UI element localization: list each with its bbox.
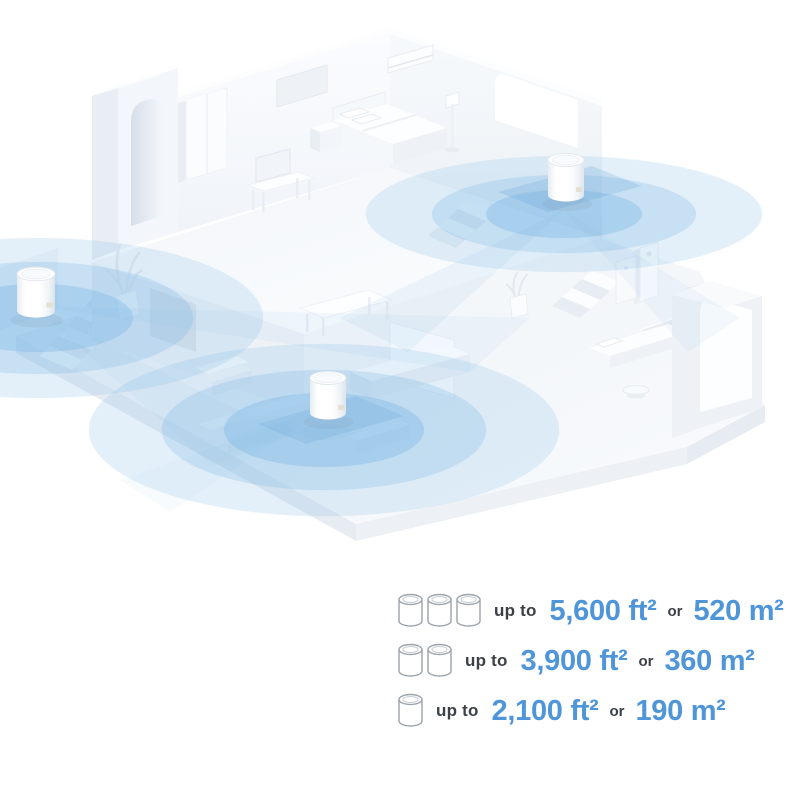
legend-row-1-unit: up to 2,100 ft² or 190 m² (397, 688, 784, 734)
deco-unit-icon (397, 593, 424, 630)
coverage-prefix: up to (465, 651, 508, 671)
deco-unit-icon (455, 593, 482, 630)
coverage-metric: 360 m² (664, 645, 754, 678)
deco-unit-icon (426, 643, 453, 680)
coverage-imperial: 3,900 ft² (521, 645, 628, 678)
legend-row-2-units: up to 3,900 ft² or 360 m² (397, 638, 784, 684)
house-illustration (0, 0, 800, 575)
coverage-metric: 190 m² (635, 695, 725, 728)
coverage-prefix: up to (494, 601, 537, 621)
unit-count-icons (397, 643, 453, 680)
page: up to 5,600 ft² or 520 m² up to 3,900 ft… (0, 0, 800, 800)
arch-doorway-left (92, 68, 178, 260)
coverage-prefix: up to (436, 701, 479, 721)
deco-unit-icon (397, 693, 424, 730)
coverage-metric: 520 m² (693, 595, 783, 628)
coverage-imperial: 5,600 ft² (550, 595, 657, 628)
coverage-circles-living (89, 344, 559, 516)
unit-count-icons (397, 593, 482, 630)
legend-row-3-units: up to 5,600 ft² or 520 m² (397, 588, 784, 634)
coverage-legend: up to 5,600 ft² or 520 m² up to 3,900 ft… (397, 588, 784, 738)
wardrobe (178, 88, 227, 183)
coverage-conjunction: or (638, 653, 653, 670)
deco-unit-icon (426, 593, 453, 630)
coverage-imperial: 2,100 ft² (492, 695, 599, 728)
unit-count-icons (397, 693, 424, 730)
deco-unit-icon (397, 643, 424, 680)
coverage-conjunction: or (609, 703, 624, 720)
coverage-conjunction: or (667, 603, 682, 620)
